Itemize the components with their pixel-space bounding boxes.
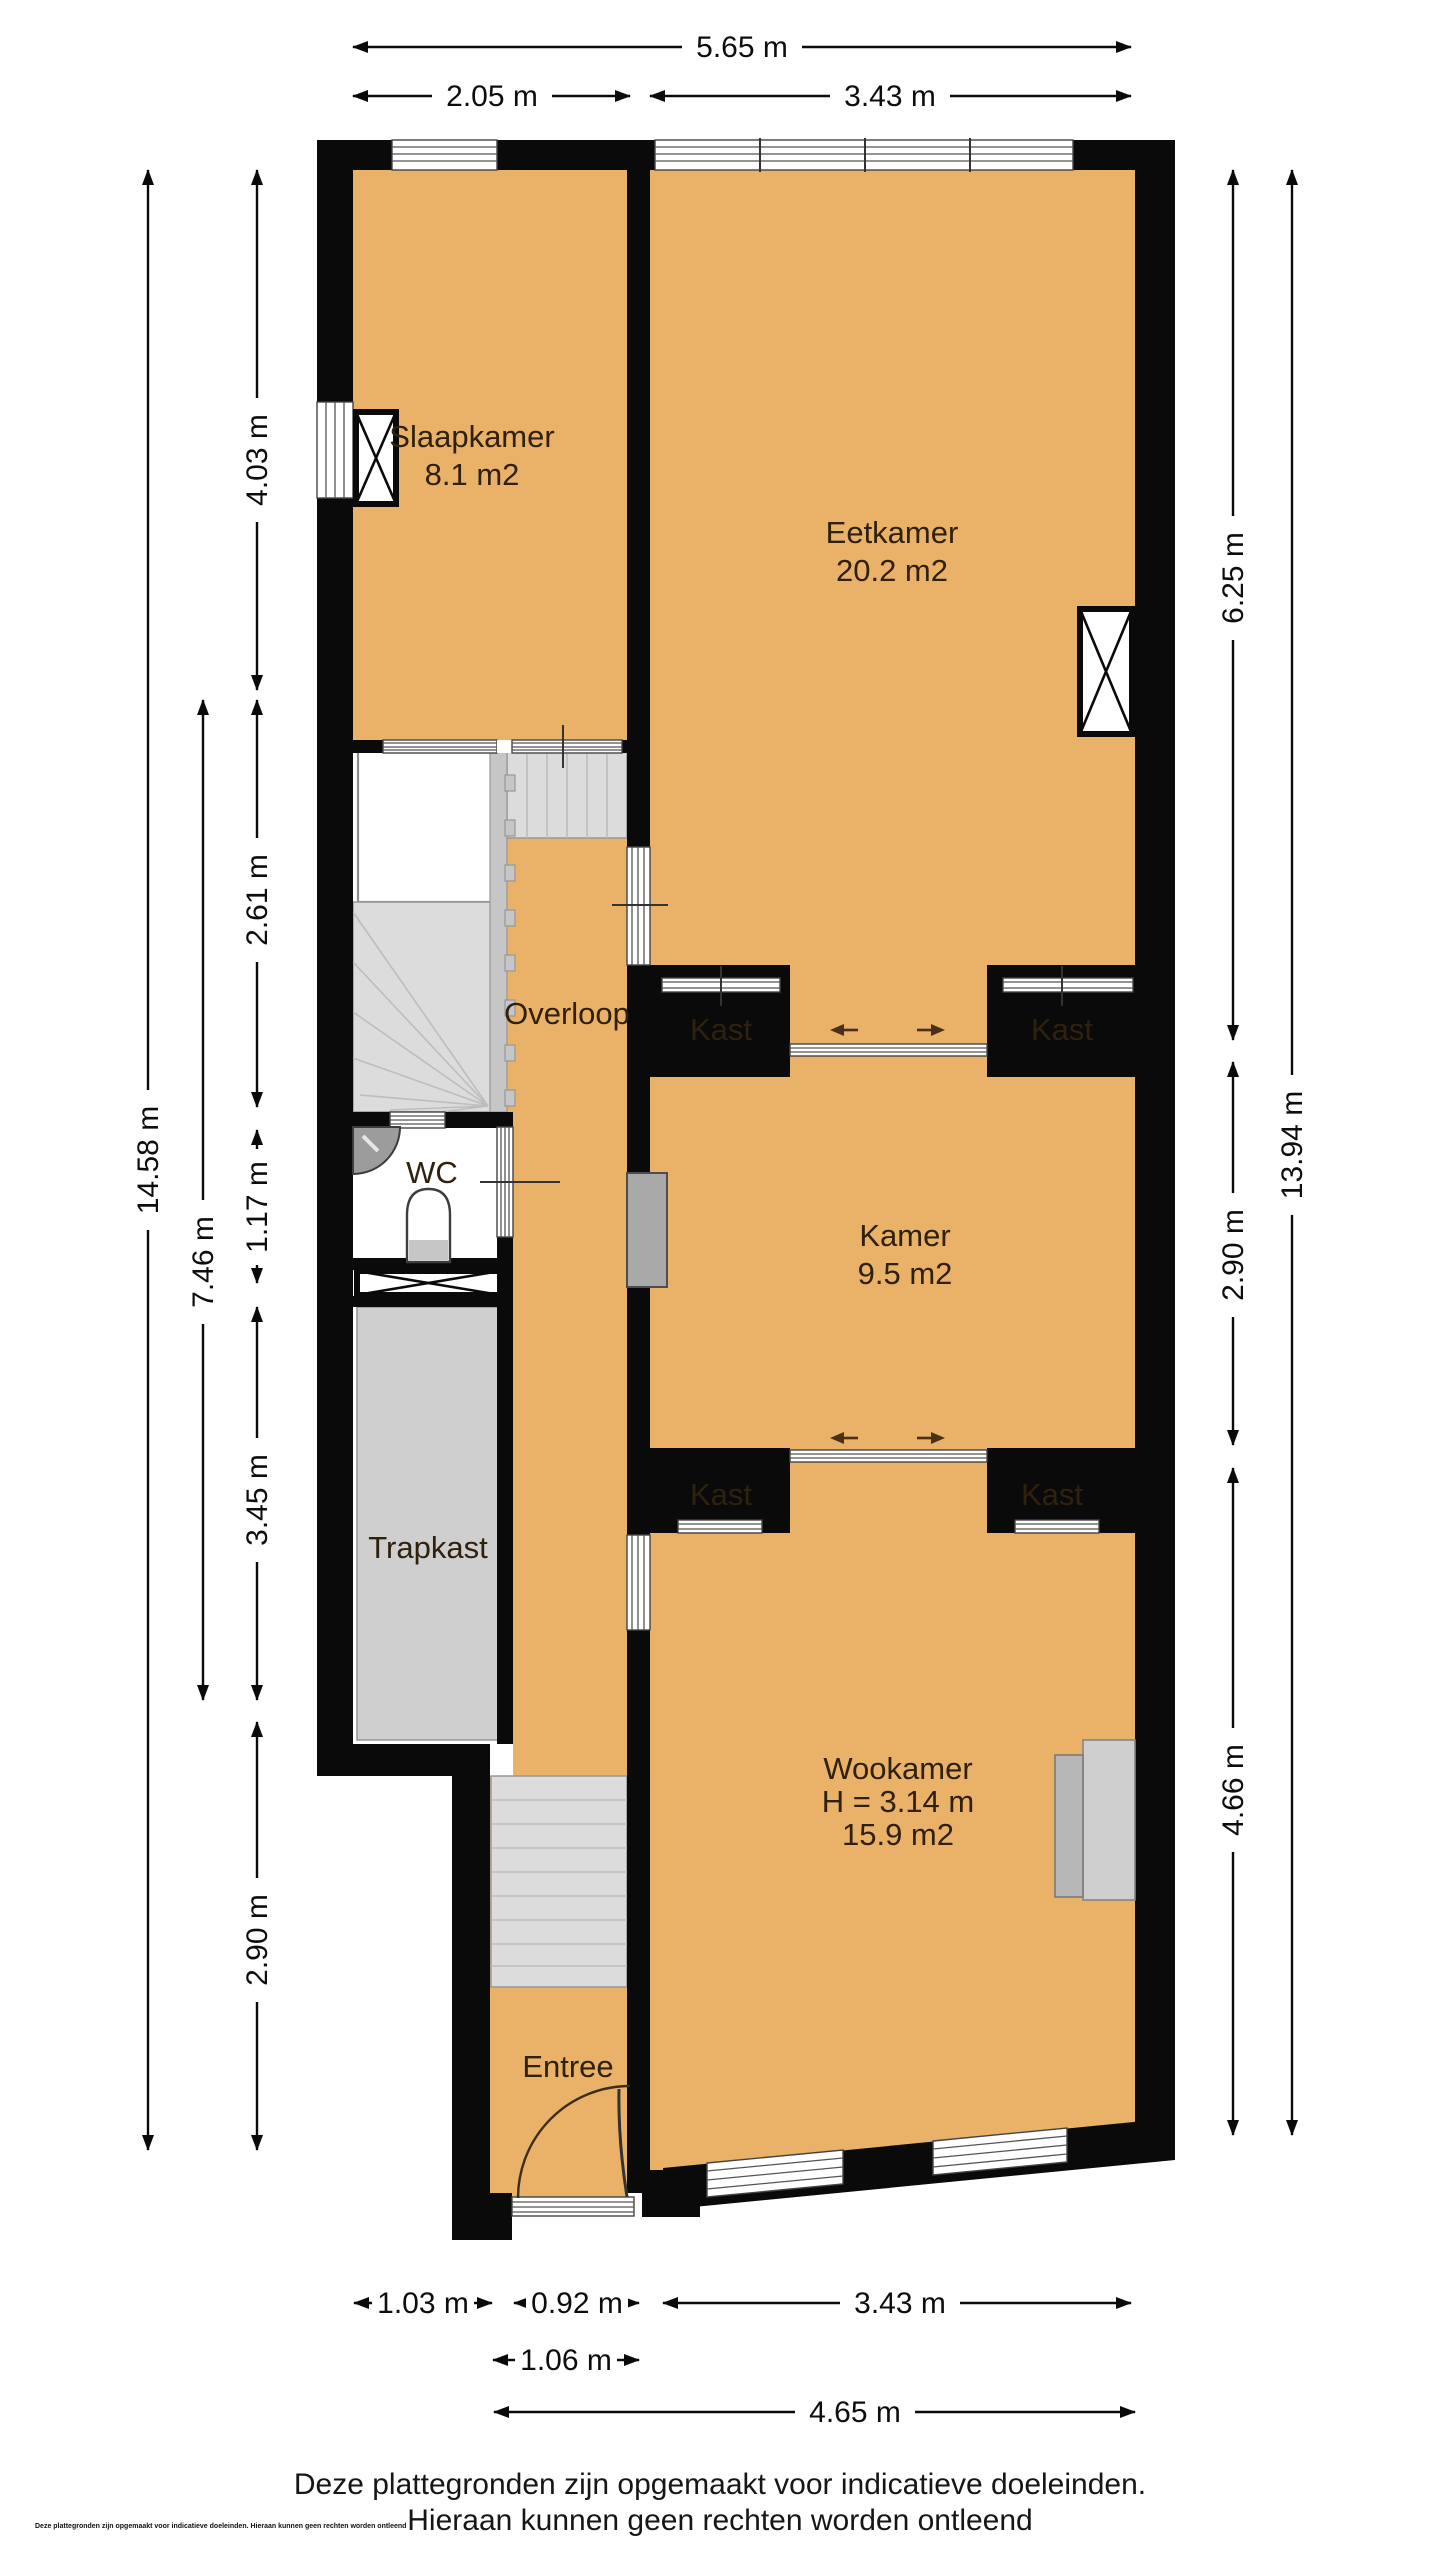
svg-text:4.66 m: 4.66 m	[1217, 1744, 1250, 1836]
trapkast-label: Trapkast	[368, 1530, 488, 1565]
svg-text:1.06 m: 1.06 m	[520, 2344, 612, 2377]
kast2-left-label: Kast	[690, 1477, 752, 1512]
dim-top-right: 3.43 m	[650, 78, 1131, 114]
kast1-left-label: Kast	[690, 1012, 752, 1047]
dim-right-total: 13.94 m	[1274, 170, 1310, 2135]
sliding-door-track2	[790, 1450, 987, 1462]
fine-print: Deze plattegronden zijn opgemaakt voor i…	[35, 2523, 406, 2530]
corridor-floor	[513, 1112, 627, 1776]
dim-left-seg5: 2.90 m	[239, 1722, 275, 2150]
dim-left-total: 14.58 m	[130, 170, 166, 2150]
dim-top-left: 2.05 m	[353, 78, 630, 114]
floor-plan-svg: Slaapkamer 8.1 m2 Eetkamer 20.2 m2 Overl…	[0, 0, 1440, 2560]
wookamer-column	[1055, 1755, 1083, 1897]
svg-text:3.45 m: 3.45 m	[241, 1454, 274, 1546]
svg-text:7.46 m: 7.46 m	[187, 1216, 220, 1308]
dim-left-seg1: 4.03 m	[239, 170, 275, 690]
wookamer-area: 15.9 m2	[842, 1817, 954, 1852]
dim-top-total: 5.65 m	[353, 29, 1131, 65]
disclaimer-line2: Hieraan kunnen geen rechten worden ontle…	[407, 2504, 1032, 2537]
dim-left-seg4: 3.45 m	[239, 1307, 275, 1700]
entree-label: Entree	[522, 2049, 613, 2084]
svg-text:13.94 m: 13.94 m	[1276, 1091, 1309, 1199]
dim-bottom-seg1: 1.03 m	[354, 2285, 492, 2321]
dim-right-seg3: 4.66 m	[1215, 1468, 1251, 2135]
dim-bottom-seg3: 3.43 m	[663, 2285, 1131, 2321]
dim-left-seg3: 1.17 m	[239, 1130, 275, 1283]
slaapkamer-label: Slaapkamer	[389, 419, 554, 454]
dim-bottom-row3: 4.65 m	[494, 2394, 1135, 2430]
svg-text:1.03 m: 1.03 m	[377, 2287, 469, 2320]
slaapkamer-area: 8.1 m2	[425, 457, 520, 492]
kast2-right-label: Kast	[1021, 1477, 1083, 1512]
svg-text:2.90 m: 2.90 m	[241, 1894, 274, 1986]
stairwell-void	[358, 750, 492, 902]
landing-door-gap	[497, 740, 512, 753]
kast1-right-front	[1003, 978, 1133, 992]
svg-text:2.90 m: 2.90 m	[1217, 1209, 1250, 1301]
dim-bottom-seg2: 0.92 m	[514, 2285, 639, 2321]
svg-text:5.65 m: 5.65 m	[696, 31, 788, 64]
svg-text:2.05 m: 2.05 m	[446, 80, 538, 113]
kast2-left-notch	[678, 1520, 762, 1533]
wall-right	[1135, 140, 1175, 2140]
kast2-right-notch	[1015, 1520, 1099, 1533]
svg-text:1.17 m: 1.17 m	[241, 1161, 274, 1253]
entree-staircase	[491, 1776, 627, 1987]
wall-step	[317, 1744, 475, 1776]
wall-corner-sw	[452, 2193, 512, 2240]
svg-text:3.43 m: 3.43 m	[854, 2287, 946, 2320]
eetkamer-area: 20.2 m2	[836, 553, 948, 588]
eetkamer-label: Eetkamer	[826, 515, 959, 550]
overloop-label: Overloop	[504, 996, 630, 1031]
wookamer-cabinet	[1083, 1740, 1135, 1900]
wookamer-label: Wookamer	[823, 1751, 972, 1786]
wc-label: WC	[406, 1155, 458, 1190]
overloop-floor	[507, 838, 627, 1112]
floor-plan-page: Slaapkamer 8.1 m2 Eetkamer 20.2 m2 Overl…	[0, 0, 1440, 2560]
svg-text:4.03 m: 4.03 m	[241, 414, 274, 506]
svg-text:14.58 m: 14.58 m	[132, 1106, 165, 1214]
sliding-door-track1	[790, 1044, 987, 1056]
kamer-chimney	[627, 1173, 667, 1287]
window-slaapkamer-top	[392, 140, 497, 170]
wall-left-lower	[452, 1744, 490, 2196]
kamer-label: Kamer	[859, 1218, 950, 1253]
trapkast-area	[357, 1307, 500, 1740]
svg-text:4.65 m: 4.65 m	[809, 2396, 901, 2429]
svg-text:6.25 m: 6.25 m	[1217, 532, 1250, 624]
dim-left-seg2: 2.61 m	[239, 700, 275, 1107]
dim-right-seg2: 2.90 m	[1215, 1062, 1251, 1445]
svg-text:2.61 m: 2.61 m	[241, 854, 274, 946]
dim-right-seg1: 6.25 m	[1215, 170, 1251, 1040]
wc-toilet-base	[409, 1240, 448, 1260]
disclaimer-line1: Deze plattegronden zijn opgemaakt voor i…	[294, 2468, 1146, 2501]
winder-stairs	[353, 902, 497, 1112]
kamer-area: 9.5 m2	[858, 1256, 953, 1291]
wall-left-upper	[317, 140, 353, 1744]
kast-passage1-floor	[790, 965, 987, 1077]
svg-text:0.92 m: 0.92 m	[531, 2287, 623, 2320]
dim-bottom-row2: 1.06 m	[493, 2342, 639, 2378]
svg-text:3.43 m: 3.43 m	[844, 80, 936, 113]
dim-left-mid: 7.46 m	[185, 700, 221, 1700]
kast1-right-label: Kast	[1031, 1012, 1093, 1047]
footer: Deze plattegronden zijn opgemaakt voor i…	[35, 2468, 1146, 2537]
wookamer-height: H = 3.14 m	[822, 1784, 975, 1819]
